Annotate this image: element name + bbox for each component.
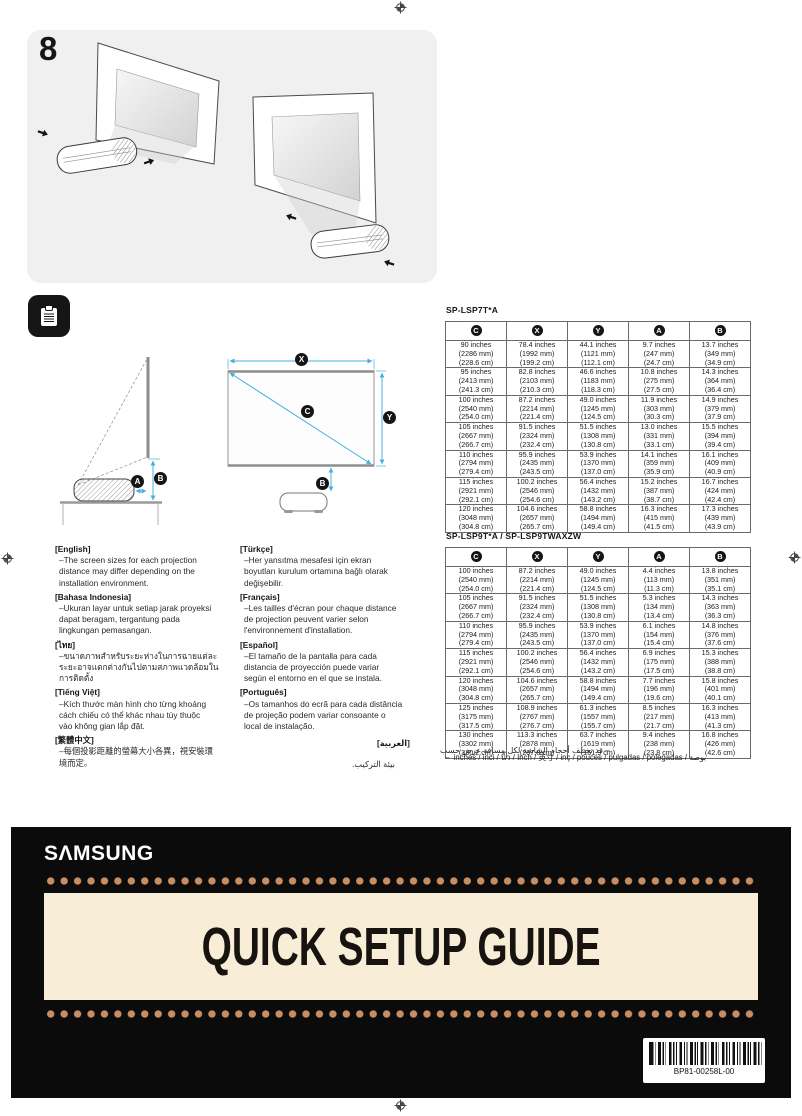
size-cell: 14.8 inches (376 mm) (37.6 cm)	[690, 621, 751, 648]
column-header: X	[507, 322, 568, 341]
quick-setup-guide-page: 8	[0, 0, 802, 1116]
size-cell: 58.8 inches (1494 mm) (149.4 cm)	[568, 505, 629, 532]
size-cell: 15.2 inches (387 mm) (38.7 cm)	[629, 477, 690, 504]
size-table-lsp9t: CXYAB100 inches (2540 mm) (254.0 cm)87.2…	[445, 547, 751, 759]
size-cell: 46.6 inches (1183 mm) (118.3 cm)	[568, 368, 629, 395]
column-header: X	[507, 548, 568, 567]
y-dimension-badge: Y	[383, 411, 396, 424]
column-header: C	[446, 548, 507, 567]
lang-text: –Ukuran layar untuk setiap jarak proyeks…	[55, 603, 240, 637]
units-footnote: – inches / inci / นิ้ว / Inch / 英寸 / inç…	[445, 752, 706, 764]
size-cell: 14.9 inches (379 mm) (37.9 cm)	[690, 395, 751, 422]
title-panel: QUICK SETUP GUIDE	[44, 893, 758, 1000]
x-dimension-badge: X	[295, 353, 308, 366]
lang-text: –每個投影距離的螢幕大小各異，視安裝環 境而定。	[55, 746, 240, 768]
column-header: A	[629, 548, 690, 567]
size-cell: 95.9 inches (2435 mm) (243.5 cm)	[507, 450, 568, 477]
table-row: 95 inches (2413 mm) (241.3 cm)82.8 inche…	[446, 368, 751, 395]
lang-block-french: [Français] –Les tailles d'écran pour cha…	[240, 592, 440, 637]
barcode-bars	[649, 1042, 762, 1065]
size-cell: 87.2 inches (2214 mm) (221.4 cm)	[507, 395, 568, 422]
b-badge-icon: B	[715, 325, 726, 336]
lang-text: –Her yansıtma mesafesi için ekran boyutl…	[240, 555, 440, 589]
size-cell: 51.5 inches (1308 mm) (130.8 cm)	[568, 423, 629, 450]
column-header: A	[629, 322, 690, 341]
lang-block-english: [English] –The screen sizes for each pro…	[55, 544, 240, 589]
note-clipboard-icon	[28, 295, 70, 337]
header-row: CXYAB	[446, 548, 751, 567]
lang-block-turkish: [Türkçe] –Her yansıtma mesafesi için ekr…	[240, 544, 440, 589]
step-number: 8	[39, 30, 57, 68]
c-dimension-badge: C	[301, 405, 314, 418]
table-row: 120 inches (3048 mm) (304.8 cm)104.6 inc…	[446, 676, 751, 703]
size-cell: 108.9 inches (2767 mm) (276.7 cm)	[507, 703, 568, 730]
column-header: Y	[568, 322, 629, 341]
size-cell: 105 inches (2667 mm) (266.7 cm)	[446, 594, 507, 621]
table-row: 100 inches (2540 mm) (254.0 cm)87.2 inch…	[446, 395, 751, 422]
size-cell: 51.5 inches (1308 mm) (130.8 cm)	[568, 594, 629, 621]
c-badge-icon: C	[471, 551, 482, 562]
size-cell: 6.1 inches (154 mm) (15.4 cm)	[629, 621, 690, 648]
lang-text: –ขนาดภาพสำหรับระยะห่างในการฉายแต่ละ ระยะ…	[55, 651, 240, 685]
size-cell: 125 inches (3175 mm) (317.5 cm)	[446, 703, 507, 730]
lang-heading: [English]	[55, 544, 240, 555]
size-cell: 16.7 inches (424 mm) (42.4 cm)	[690, 477, 751, 504]
size-cell: 82.8 inches (2103 mm) (210.3 cm)	[507, 368, 568, 395]
size-cell: 104.6 inches (2657 mm) (265.7 cm)	[507, 505, 568, 532]
b-dimension-badge: B	[316, 477, 329, 490]
table-row: 110 inches (2794 mm) (279.4 cm)95.9 inch…	[446, 621, 751, 648]
size-cell: 53.9 inches (1370 mm) (137.0 cm)	[568, 621, 629, 648]
header-row: CXYAB	[446, 322, 751, 341]
size-cell: 16.3 inches (413 mm) (41.3 cm)	[690, 703, 751, 730]
column-header: B	[690, 548, 751, 567]
size-cell: 13.7 inches (349 mm) (34.9 cm)	[690, 341, 751, 368]
table-row: 115 inches (2921 mm) (292.1 cm)100.2 inc…	[446, 477, 751, 504]
size-cell: 13.8 inches (351 mm) (35.1 cm)	[690, 567, 751, 594]
size-cell: 49.0 inches (1245 mm) (124.5 cm)	[568, 395, 629, 422]
size-cell: 15.8 inches (401 mm) (40.1 cm)	[690, 676, 751, 703]
size-cell: 14.3 inches (364 mm) (36.4 cm)	[690, 368, 751, 395]
size-cell: 78.4 inches (1992 mm) (199.2 cm)	[507, 341, 568, 368]
y-badge-icon: Y	[593, 325, 604, 336]
lang-heading: [繁體中文]	[55, 735, 240, 746]
size-cell: 115 inches (2921 mm) (292.1 cm)	[446, 649, 507, 676]
dot-strip-bottom	[44, 1008, 758, 1020]
right-screen-diagram	[253, 93, 395, 268]
size-cell: 16.1 inches (409 mm) (40.9 cm)	[690, 450, 751, 477]
size-cell: 10.8 inches (275 mm) (27.5 cm)	[629, 368, 690, 395]
size-cell: 16.3 inches (415 mm) (41.5 cm)	[629, 505, 690, 532]
size-cell: 110 inches (2794 mm) (279.4 cm)	[446, 621, 507, 648]
size-cell: 53.9 inches (1370 mm) (137.0 cm)	[568, 450, 629, 477]
table-title-lsp7t: SP-LSP7T*A	[446, 305, 498, 315]
size-cell: 14.1 inches (359 mm) (35.9 cm)	[629, 450, 690, 477]
lang-heading: [ไทย]	[55, 640, 240, 651]
table-row: 125 inches (3175 mm) (317.5 cm)108.9 inc…	[446, 703, 751, 730]
table-row: 100 inches (2540 mm) (254.0 cm)87.2 inch…	[446, 567, 751, 594]
registration-mark-icon	[394, 1, 407, 14]
table-row: 90 inches (2286 mm) (228.6 cm)78.4 inche…	[446, 341, 751, 368]
size-cell: 100.2 inches (2546 mm) (254.6 cm)	[507, 649, 568, 676]
side-view-distance-diagram	[40, 345, 235, 545]
column-header: Y	[568, 548, 629, 567]
step-8-illustration-panel: 8	[27, 30, 437, 283]
y-badge-icon: Y	[593, 551, 604, 562]
lang-heading-arabic: [العربية]	[377, 738, 410, 748]
size-cell: 5.3 inches (134 mm) (13.4 cm)	[629, 594, 690, 621]
x-badge-icon: X	[532, 325, 543, 336]
c-badge-icon: C	[471, 325, 482, 336]
size-cell: 56.4 inches (1432 mm) (143.2 cm)	[568, 477, 629, 504]
size-cell: 100.2 inches (2546 mm) (254.6 cm)	[507, 477, 568, 504]
size-cell: 100 inches (2540 mm) (254.0 cm)	[446, 567, 507, 594]
size-cell: 13.0 inches (331 mm) (33.1 cm)	[629, 423, 690, 450]
lang-text: –Les tailles d'écran pour chaque distanc…	[240, 603, 440, 637]
size-cell: 100 inches (2540 mm) (254.0 cm)	[446, 395, 507, 422]
size-cell: 7.7 inches (196 mm) (19.6 cm)	[629, 676, 690, 703]
size-cell: 120 inches (3048 mm) (304.8 cm)	[446, 505, 507, 532]
a-badge-icon: A	[654, 551, 665, 562]
column-header: B	[690, 322, 751, 341]
lang-heading: [Türkçe]	[240, 544, 440, 555]
size-cell: 14.3 inches (363 mm) (36.3 cm)	[690, 594, 751, 621]
lang-heading: [Tiếng Việt]	[55, 687, 240, 698]
size-cell: 105 inches (2667 mm) (266.7 cm)	[446, 423, 507, 450]
size-cell: 61.3 inches (1557 mm) (155.7 cm)	[568, 703, 629, 730]
b-badge-icon: B	[715, 551, 726, 562]
size-cell: 4.4 inches (113 mm) (11.3 cm)	[629, 567, 690, 594]
size-cell: 95 inches (2413 mm) (241.3 cm)	[446, 368, 507, 395]
lang-text-arabic: بيئة التركيب.	[352, 759, 395, 769]
column-header: C	[446, 322, 507, 341]
size-cell: 9.7 inches (247 mm) (24.7 cm)	[629, 341, 690, 368]
left-screen-diagram	[37, 43, 219, 175]
barcode: BP81-00258L-00	[643, 1038, 765, 1083]
a-dimension-badge: A	[131, 475, 144, 488]
registration-mark-icon	[788, 551, 801, 564]
size-cell: 15.3 inches (388 mm) (38.8 cm)	[690, 649, 751, 676]
lang-text: –Kích thước màn hình cho từng khoảng các…	[55, 699, 240, 733]
size-cell: 44.1 inches (1121 mm) (112.1 cm)	[568, 341, 629, 368]
size-table-lsp7t: CXYAB90 inches (2286 mm) (228.6 cm)78.4 …	[445, 321, 751, 533]
lang-text: –El tamaño de la pantalla para cada dist…	[240, 651, 440, 685]
registration-mark-icon	[1, 552, 14, 565]
size-cell: 104.6 inches (2657 mm) (265.7 cm)	[507, 676, 568, 703]
x-badge-icon: X	[532, 551, 543, 562]
guide-title: QUICK SETUP GUIDE	[202, 916, 601, 978]
samsung-logo: SΛMSUNG	[44, 842, 154, 866]
lang-block-spanish: [Español] –El tamaño de la pantalla para…	[240, 640, 440, 685]
banner: SΛMSUNG QUICK SETUP GUIDE BP81-00258L-00	[11, 827, 791, 1098]
size-cell: 58.8 inches (1494 mm) (149.4 cm)	[568, 676, 629, 703]
size-cell: 95.9 inches (2435 mm) (243.5 cm)	[507, 621, 568, 648]
lang-block-thai: [ไทย] –ขนาดภาพสำหรับระยะห่างในการฉายแต่ล…	[55, 640, 240, 685]
size-cell: 90 inches (2286 mm) (228.6 cm)	[446, 341, 507, 368]
lang-text: –Os tamanhos do ecrã para cada distância…	[240, 699, 440, 733]
lang-heading: [Português]	[240, 687, 440, 698]
size-cell: 110 inches (2794 mm) (279.4 cm)	[446, 450, 507, 477]
lang-heading: [Bahasa Indonesia]	[55, 592, 240, 603]
registration-mark-icon	[394, 1099, 407, 1112]
size-cell: 8.5 inches (217 mm) (21.7 cm)	[629, 703, 690, 730]
size-cell: 87.2 inches (2214 mm) (221.4 cm)	[507, 567, 568, 594]
size-cell: 17.3 inches (439 mm) (43.9 cm)	[690, 505, 751, 532]
lang-heading: [Français]	[240, 592, 440, 603]
size-cell: 91.5 inches (2324 mm) (232.4 cm)	[507, 594, 568, 621]
size-cell: 91.5 inches (2324 mm) (232.4 cm)	[507, 423, 568, 450]
lang-block-indonesian: [Bahasa Indonesia] –Ukuran layar untuk s…	[55, 592, 240, 637]
projector-front-view	[280, 493, 327, 511]
lang-block-portuguese: [Português] –Os tamanhos do ecrã para ca…	[240, 687, 440, 732]
table-row: 105 inches (2667 mm) (266.7 cm)91.5 inch…	[446, 594, 751, 621]
table-row: 105 inches (2667 mm) (266.7 cm)91.5 inch…	[446, 423, 751, 450]
size-cell: 49.0 inches (1245 mm) (124.5 cm)	[568, 567, 629, 594]
language-column-left: [English] –The screen sizes for each pro…	[55, 544, 240, 772]
dot-strip-top	[44, 875, 758, 887]
size-cell: 15.5 inches (394 mm) (39.4 cm)	[690, 423, 751, 450]
size-cell: 120 inches (3048 mm) (304.8 cm)	[446, 676, 507, 703]
lang-block-vietnamese: [Tiếng Việt] –Kích thước màn hình cho từ…	[55, 687, 240, 732]
table-row: 115 inches (2921 mm) (292.1 cm)100.2 inc…	[446, 649, 751, 676]
lang-text: –The screen sizes for each projection di…	[55, 555, 240, 589]
size-cell: 11.9 inches (303 mm) (30.3 cm)	[629, 395, 690, 422]
front-view-screen-diagram	[220, 340, 420, 525]
size-cell: 6.9 inches (175 mm) (17.5 cm)	[629, 649, 690, 676]
table-row: 120 inches (3048 mm) (304.8 cm)104.6 inc…	[446, 505, 751, 532]
b-dimension-badge: B	[154, 472, 167, 485]
size-cell: 56.4 inches (1432 mm) (143.2 cm)	[568, 649, 629, 676]
barcode-label: BP81-00258L-00	[643, 1067, 765, 1076]
lang-heading: [Español]	[240, 640, 440, 651]
language-column-middle: [Türkçe] –Her yansıtma mesafesi için ekr…	[240, 544, 440, 735]
projector-placement-illustration	[27, 30, 437, 283]
lang-block-chinese: [繁體中文] –每個投影距離的螢幕大小各異，視安裝環 境而定。	[55, 735, 240, 769]
table-title-lsp9t: SP-LSP9T*A / SP-LSP9TWAXZW	[446, 531, 581, 541]
a-badge-icon: A	[654, 325, 665, 336]
size-cell: 115 inches (2921 mm) (292.1 cm)	[446, 477, 507, 504]
projector-side-view	[74, 479, 134, 501]
table-row: 110 inches (2794 mm) (279.4 cm)95.9 inch…	[446, 450, 751, 477]
